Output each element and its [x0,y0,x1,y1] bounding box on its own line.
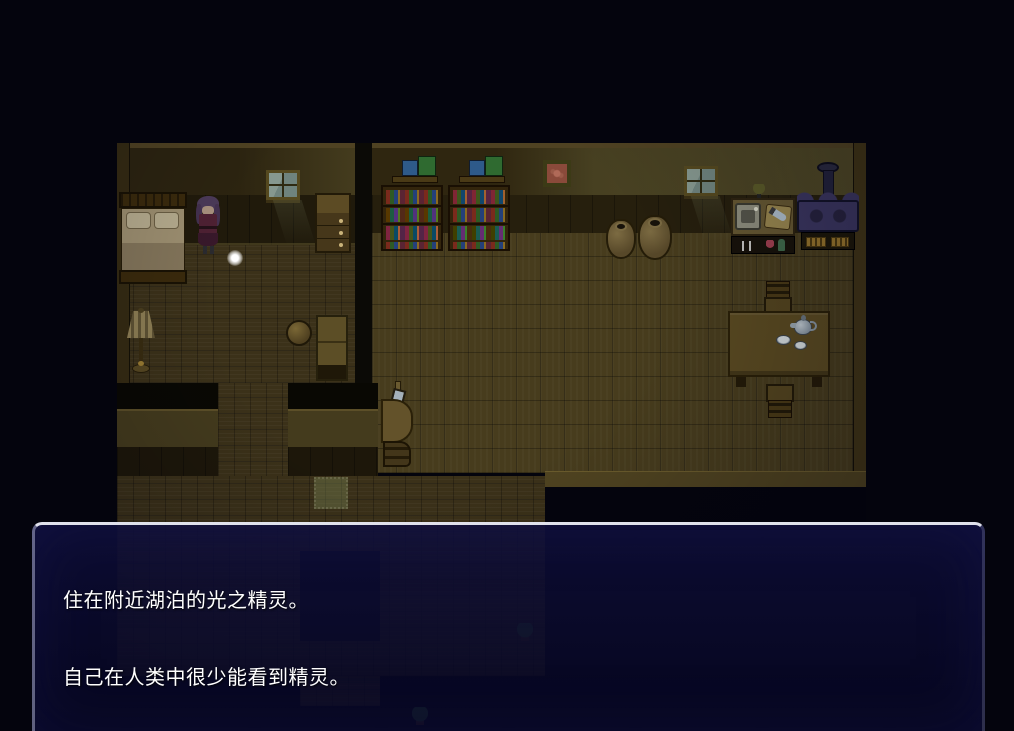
bottle-marks [742,241,756,251]
doorway-gap-right [288,383,378,409]
bed-footboard [119,270,187,284]
drawers-top [317,195,349,213]
character-belt [199,226,217,229]
chair [762,281,794,313]
sink-counter [731,192,795,254]
table-leg [736,377,746,387]
lower-room-wall-right [288,409,378,476]
floor-lamp [127,308,155,376]
book-row [453,242,505,249]
book-row [453,190,505,204]
vanity-base [383,441,411,467]
picture-frame [543,160,571,187]
stove-vent [806,237,826,247]
bookshelf-top-books [455,156,505,186]
drawer-line [317,225,349,226]
stove-vent [831,237,849,247]
cabinet-shelf-line [318,341,346,343]
book-stack [418,156,436,176]
chest-of-drawers [315,193,351,253]
bed-pillow [154,212,179,229]
teapot-lid [801,315,806,321]
character-leg [203,246,207,254]
drawer-knob [339,219,343,223]
shelf-board [459,176,505,183]
teapot-icon [790,315,816,337]
teapot-spout [790,323,796,328]
book-row [386,226,438,240]
book-stack [469,160,485,176]
jar-mouth [615,222,627,231]
bookshelf [448,185,510,251]
shelf-board [392,176,438,183]
lamp-finial [138,308,144,313]
red-flower-icon [766,240,774,250]
doorway-gap-left [117,383,218,409]
jar [606,219,636,259]
chair-back [768,400,792,418]
game-screen: 住在附近湖泊的光之精灵。 自己在人类中很少能看到精灵。 仅仅因为这一点就被这个精… [0,0,1014,731]
book-stack [485,156,503,176]
vanity-mirror [381,381,415,471]
dialogue-line: 住在附近湖泊的光之精灵。 [63,588,954,614]
stove-base [801,232,855,250]
table-leg [812,377,822,387]
dining-table [728,311,830,393]
stove-body [797,200,859,232]
jar-mouth [648,218,662,228]
book-row [386,190,438,204]
character-torso [199,214,217,234]
kitchen-window [684,166,718,196]
bookshelf [381,185,443,251]
lower-room-wall-right-base [288,447,378,476]
player-character[interactable] [196,196,220,254]
book-row [386,242,438,249]
drawer-line [317,238,349,239]
chair [764,384,796,418]
shelf-line [450,205,508,207]
jar [638,215,672,260]
sink-basin [735,203,761,230]
character-skirt [198,233,218,246]
green-bottle-icon [778,239,785,251]
book-row [386,208,438,222]
character-leg [210,246,214,254]
vanity-top [381,399,413,443]
shelf-line [383,223,441,225]
shelf-line [383,205,441,207]
stool [286,320,312,346]
bedroom-window [266,170,300,200]
sink-plant-icon [753,184,765,198]
counter-cabinet [731,236,795,254]
dialogue-line: 自己在人类中很少能看到精灵。 [63,665,954,691]
room-divider-wall [355,143,372,383]
bed-headboard [119,192,187,208]
bookshelf-top-books [388,156,438,186]
dialogue-window[interactable]: 住在附近湖泊的光之精灵。 自己在人类中很少能看到精灵。 仅仅因为这一点就被这个精… [32,522,985,731]
teapot-handle [810,321,817,331]
sink-drain [741,210,755,223]
livingroom-upper-wall [372,143,866,195]
floor-mat [314,477,348,509]
lower-room-wall-left-base [117,447,218,476]
dialogue-text: 住在附近湖泊的光之精灵。 自己在人类中很少能看到精灵。 仅仅因为这一点就被这个精… [35,525,982,731]
lamp-shade [127,311,155,338]
drawer-knob [339,243,343,247]
bed-pillow [126,212,151,229]
sink-faucet-dot [754,207,758,211]
drawer-knob [339,231,343,235]
cabinet [316,315,348,381]
book-stack [402,160,418,176]
bed [119,192,187,286]
teacup-icon [776,335,791,345]
book-row [453,208,505,222]
lower-room-wall-left [117,409,218,476]
hallway-corridor [218,383,288,478]
stove [797,162,859,252]
teacup-icon [794,341,807,350]
cabinet-base [318,365,346,379]
book-row [453,226,505,240]
floor-ledge [545,471,866,487]
light-orb [227,250,243,266]
lamp-base-knob [138,361,144,366]
shelf-line [450,223,508,225]
